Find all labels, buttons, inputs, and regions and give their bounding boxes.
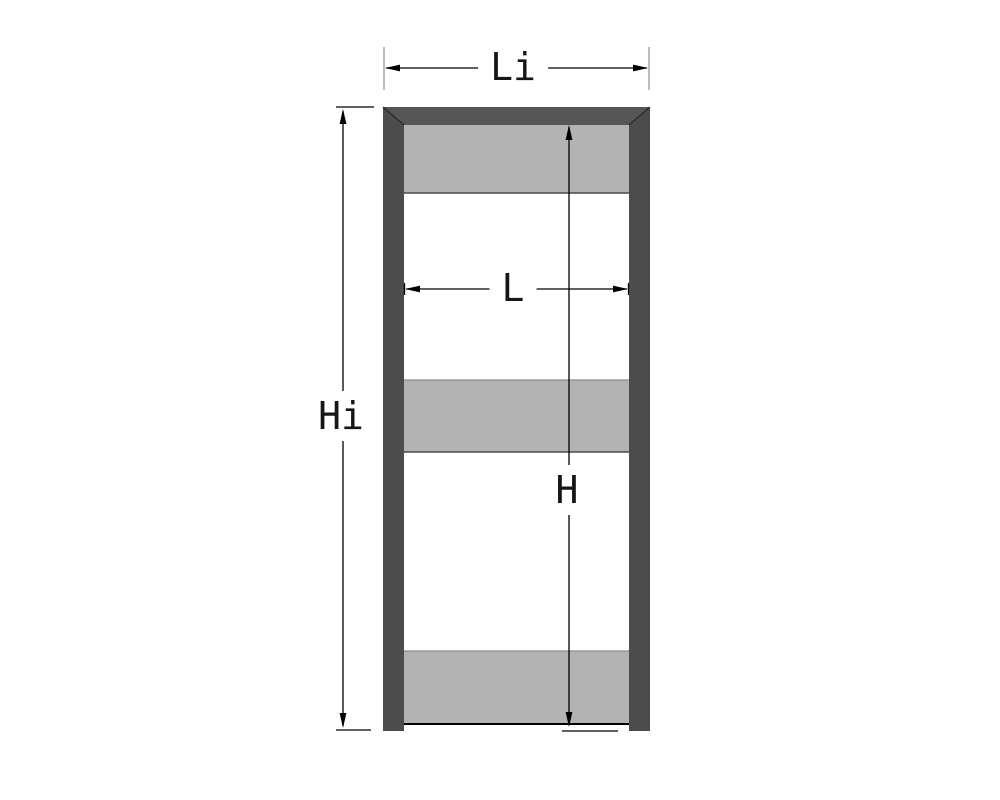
label-outer-height: Hi (306, 391, 376, 441)
label-inner-height: H (544, 465, 591, 515)
panel-group (404, 125, 629, 724)
frame-dimension-diagram (0, 0, 1000, 800)
li-arrow-right (633, 65, 648, 72)
l-arrow-left (405, 286, 420, 293)
diagram-canvas: Li L Hi H (0, 0, 1000, 800)
frame-head (383, 107, 650, 125)
frame-left-jamb (383, 107, 404, 731)
l-arrow-right (613, 286, 628, 293)
panel-bottom (404, 651, 629, 724)
hi-arrow-up (340, 109, 347, 124)
li-arrow-left (385, 65, 400, 72)
panel-middle (404, 380, 629, 452)
frame-right-jamb (629, 107, 650, 731)
panel-top (404, 125, 629, 193)
label-outer-width: Li (478, 42, 548, 92)
hi-arrow-down (340, 713, 347, 728)
label-inner-width: L (490, 263, 537, 313)
